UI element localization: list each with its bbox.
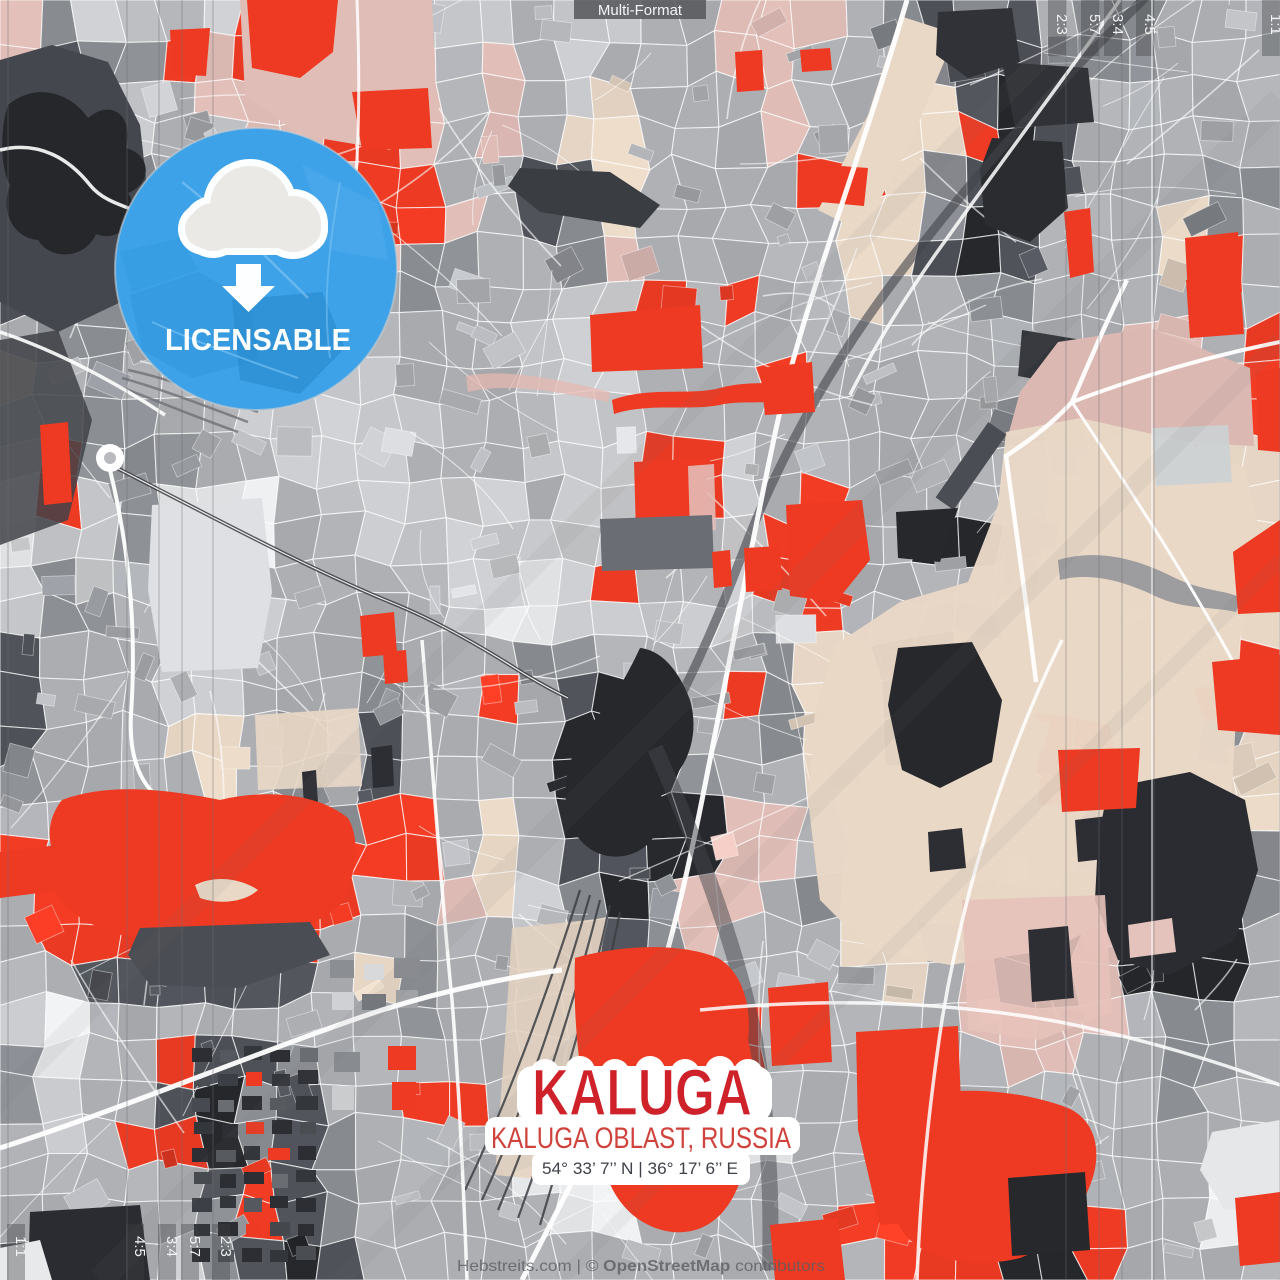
svg-text:54° 33’ 7’’ N | 36° 17’: 54° 33’ 7’’ N | 36° 17’ 6’’ E [542, 1159, 738, 1178]
svg-text:3:4: 3:4 [1109, 14, 1126, 35]
svg-text:LICENSABLE: LICENSABLE [165, 322, 351, 357]
svg-text:5:7: 5:7 [1086, 14, 1103, 35]
svg-text:4:5: 4:5 [131, 1236, 148, 1257]
svg-text:Hebstreits.com | © OpenStreetM: Hebstreits.com | © OpenStreetMap contrib… [457, 1258, 825, 1275]
svg-text:4:5: 4:5 [1141, 14, 1158, 35]
svg-text:Multi-Format: Multi-Format [598, 2, 683, 19]
svg-text:1:1: 1:1 [12, 1236, 29, 1257]
svg-text:KALUGA: KALUGA [532, 1055, 752, 1129]
svg-text:KALUGA OBLAST, RUSSIA: KALUGA OBLAST, RUSSIA [491, 1122, 791, 1155]
svg-text:2:3: 2:3 [1053, 14, 1070, 35]
svg-text:2:3: 2:3 [217, 1236, 234, 1257]
svg-text:1:1: 1:1 [1267, 14, 1280, 35]
svg-text:3:4: 3:4 [163, 1236, 180, 1257]
svg-text:5:7: 5:7 [186, 1236, 203, 1257]
